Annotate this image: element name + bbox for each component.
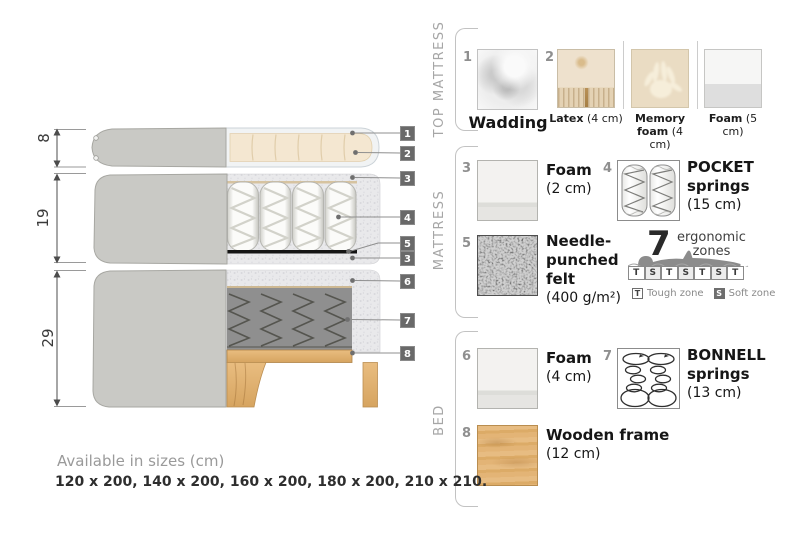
foam-5cm-label: Foam (5 cm) [698,112,768,138]
callout-1: 1 [400,126,415,141]
callout-8: 8 [400,346,415,361]
zone-box-1: T [628,266,645,280]
foam-4cm-text: Foam (4 cm) [546,349,592,387]
zone-box-2: S [645,266,662,280]
dimension-mattress-height: 19 [31,206,55,230]
dimension-top-mattress-height: 8 [32,126,56,150]
latex-label: Latex (4 cm) [549,112,623,125]
wadding-label: Wadding [462,113,554,132]
callout-3-bottom: 3 [400,251,415,266]
option-divider-2 [697,41,698,109]
item-number-4: 4 [603,161,612,176]
callout-4: 4 [400,210,415,225]
foam-4cm-image [477,348,538,409]
bonnell-springs-text: BONNELL springs (13 cm) [687,346,766,403]
section-title-top-mattress: TOP MATTRESS [432,4,450,154]
wadding-image [477,49,538,110]
bed-cross-section-illustration [30,110,430,430]
zone-box-7: T [727,266,744,280]
foam-2cm-size: (2 cm) [546,180,592,199]
zone-box-5: T [694,266,711,280]
tough-zone-key-icon: T [632,288,643,299]
foam-2cm-name: Foam [546,161,592,180]
item-number-8: 8 [462,426,471,441]
zone-box-4: S [678,266,695,280]
foam-5cm-name: Foam [709,112,743,125]
dimension-bed-height: 29 [36,326,60,350]
wooden-frame-text: Wooden frame (12 cm) [546,426,669,464]
item-number-7: 7 [603,349,612,364]
pocket-springs-name-1: POCKET [687,158,754,177]
bonnell-springs-icon [617,348,680,409]
bonnell-name-2: springs [687,365,766,384]
pocket-springs-text: POCKET springs (15 cm) [687,158,754,215]
item-number-6: 6 [462,349,471,364]
item-number-2: 2 [545,50,554,65]
memory-foam-image [631,49,689,108]
item-number-3: 3 [462,161,471,176]
ergonomic-zone-strip: T S T S T S T [628,266,744,280]
latex-size: (4 cm) [587,112,623,125]
wooden-frame-name: Wooden frame [546,426,669,445]
item-number-1: 1 [463,50,472,65]
callout-7: 7 [400,313,415,328]
zone-box-6: S [711,266,728,280]
soft-zone-label: Soft zone [729,288,776,299]
callout-6: 6 [400,274,415,289]
zone-legend: T Tough zone S Soft zone [632,288,775,299]
pocket-springs-icon [617,160,680,221]
available-sizes-list: 120 x 200, 140 x 200, 160 x 200, 180 x 2… [55,474,487,490]
callout-5: 5 [400,236,415,251]
felt-name-2: punched [546,251,621,270]
latex-name: Latex [549,112,583,125]
foam-4cm-size: (4 cm) [546,368,592,387]
foam-2cm-image [477,160,538,221]
needle-punched-felt-image [477,235,538,296]
zone-box-3: T [661,266,678,280]
available-sizes-title: Available in sizes (cm) [57,452,224,470]
felt-text: Needle- punched felt (400 g/m²) [546,232,621,308]
pocket-springs-name-2: springs [687,177,754,196]
pocket-springs-size: (15 cm) [687,196,754,215]
latex-image [557,49,615,108]
option-divider-1 [623,41,624,109]
bonnell-name-1: BONNELL [687,346,766,365]
felt-name-1: Needle- [546,232,621,251]
foam-2cm-text: Foam (2 cm) [546,161,592,199]
memory-foam-label: Memory foam (4 cm) [626,112,694,151]
soft-zone-key-icon: S [714,288,725,299]
bed-construction-infographic: 8 19 29 1 2 3 4 5 3 6 7 8 TOP MATTRESS M… [0,0,800,533]
bonnell-size: (13 cm) [687,384,766,403]
felt-size: (400 g/m²) [546,289,621,308]
item-number-5: 5 [462,236,471,251]
section-title-mattress: MATTRESS [432,155,450,305]
ergonomic-caption-line-1: ergonomic [677,231,746,245]
callout-3-top: 3 [400,171,415,186]
felt-name-3: felt [546,270,621,289]
tough-zone-label: Tough zone [647,288,704,299]
foam-4cm-name: Foam [546,349,592,368]
section-title-bed: BED [432,345,450,495]
callout-2: 2 [400,146,415,161]
foam-5cm-image [704,49,762,108]
wooden-frame-size: (12 cm) [546,445,669,464]
